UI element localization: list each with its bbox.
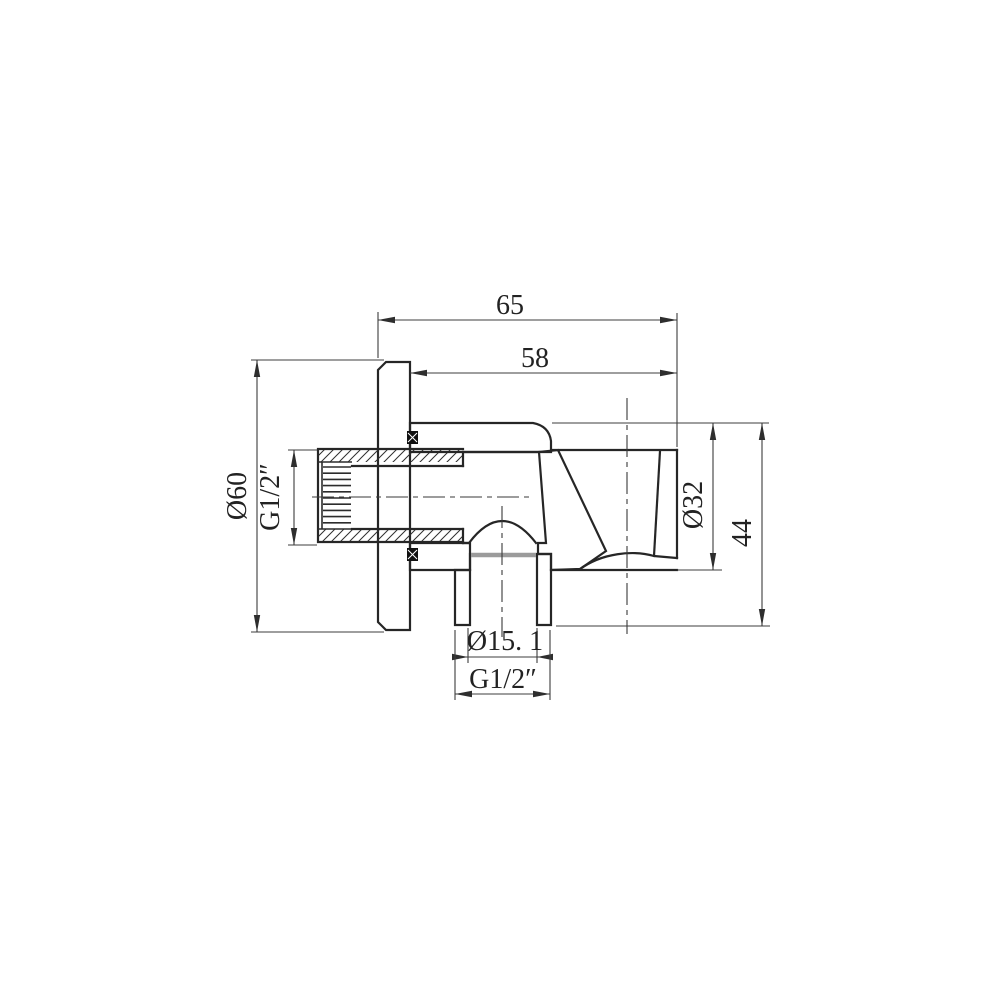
body-top-wall	[410, 423, 551, 452]
cup-bottom-curve	[580, 553, 677, 569]
outlet-port	[455, 554, 551, 625]
dimension-d60: Ø60	[222, 360, 384, 632]
inlet-socket	[318, 449, 463, 543]
body-bottom-wall	[410, 543, 470, 570]
socket-inner-edges	[318, 462, 352, 529]
dim-label-65: 65	[496, 290, 524, 321]
dim-label-d60: Ø60	[222, 472, 253, 520]
dimension-44: 44	[556, 423, 770, 626]
flange-outline	[378, 362, 410, 630]
dimension-58: 58	[410, 343, 677, 376]
dim-label-g12-inlet: G1/2″	[255, 463, 286, 531]
dim-label-44: 44	[727, 519, 758, 547]
technical-drawing: 65 58 Ø60 G1/2″ Ø32 44 Ø15	[0, 0, 1000, 1000]
dimension-g12-inlet: G1/2″	[255, 450, 317, 545]
thread-lines	[323, 467, 351, 523]
dim-label-d151: Ø15. 1	[467, 626, 543, 657]
dimension-d151: Ø15. 1	[452, 626, 553, 663]
outlet-right-wall	[537, 554, 551, 625]
socket-bottom-wall-hatch	[318, 529, 463, 542]
dim-label-58: 58	[521, 343, 549, 374]
dim-label-g12-outlet: G1/2″	[469, 664, 537, 695]
flange-section	[378, 362, 410, 630]
holder-cone-wall	[538, 450, 606, 570]
holder-cup	[551, 450, 677, 570]
outlet-left-wall	[455, 570, 470, 625]
drawing-canvas: 65 58 Ø60 G1/2″ Ø32 44 Ø15	[0, 0, 1000, 1000]
cup-inner-wall	[654, 451, 660, 556]
dim-label-d32: Ø32	[678, 481, 709, 529]
